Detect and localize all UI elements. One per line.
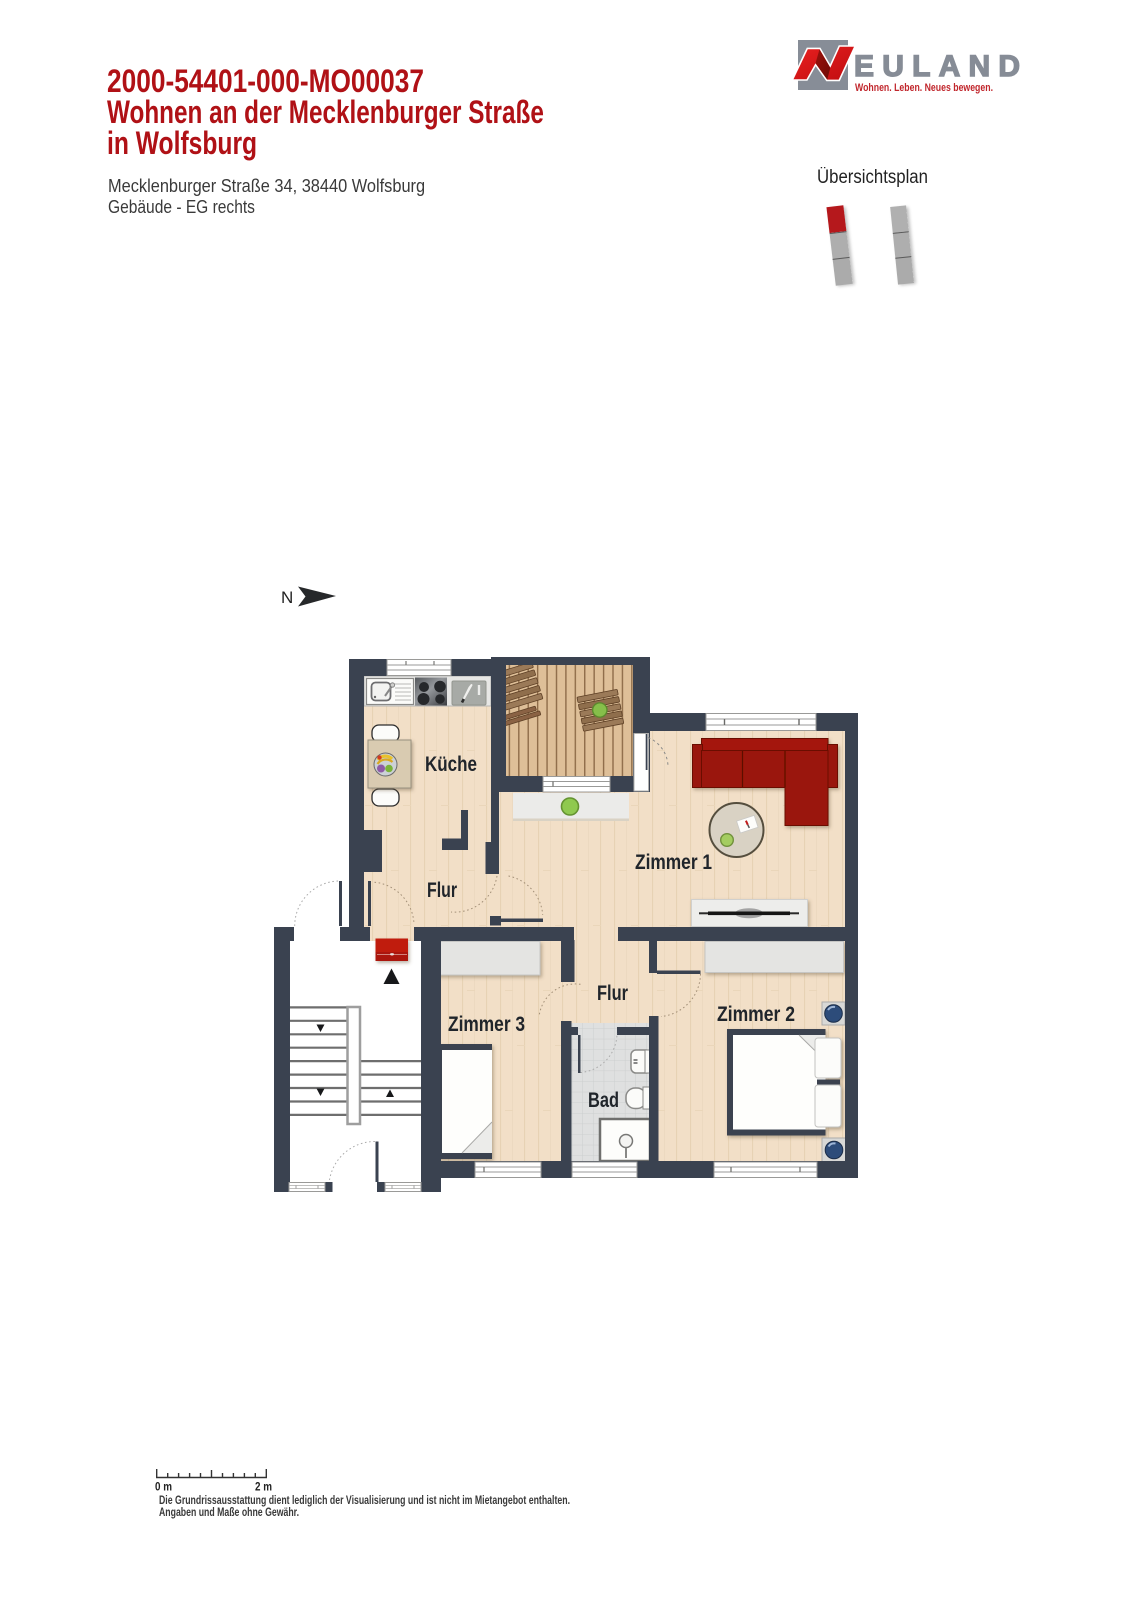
svg-text:Flur: Flur <box>427 879 457 902</box>
svg-text:Bad: Bad <box>588 1089 619 1112</box>
svg-text:N: N <box>281 588 293 607</box>
svg-text:2 m: 2 m <box>255 1480 272 1494</box>
svg-text:0 m: 0 m <box>155 1480 172 1494</box>
svg-text:Angaben und Maße ohne Gewähr.: Angaben und Maße ohne Gewähr. <box>159 1507 299 1519</box>
svg-text:Die Grundrissausstattung dient: Die Grundrissausstattung dient lediglich… <box>159 1495 570 1507</box>
svg-text:Küche: Küche <box>425 753 477 776</box>
svg-text:Zimmer 2: Zimmer 2 <box>717 1003 795 1026</box>
svg-text:Zimmer 1: Zimmer 1 <box>635 851 712 874</box>
svg-text:Flur: Flur <box>597 982 628 1005</box>
svg-text:Zimmer 3: Zimmer 3 <box>448 1013 525 1036</box>
